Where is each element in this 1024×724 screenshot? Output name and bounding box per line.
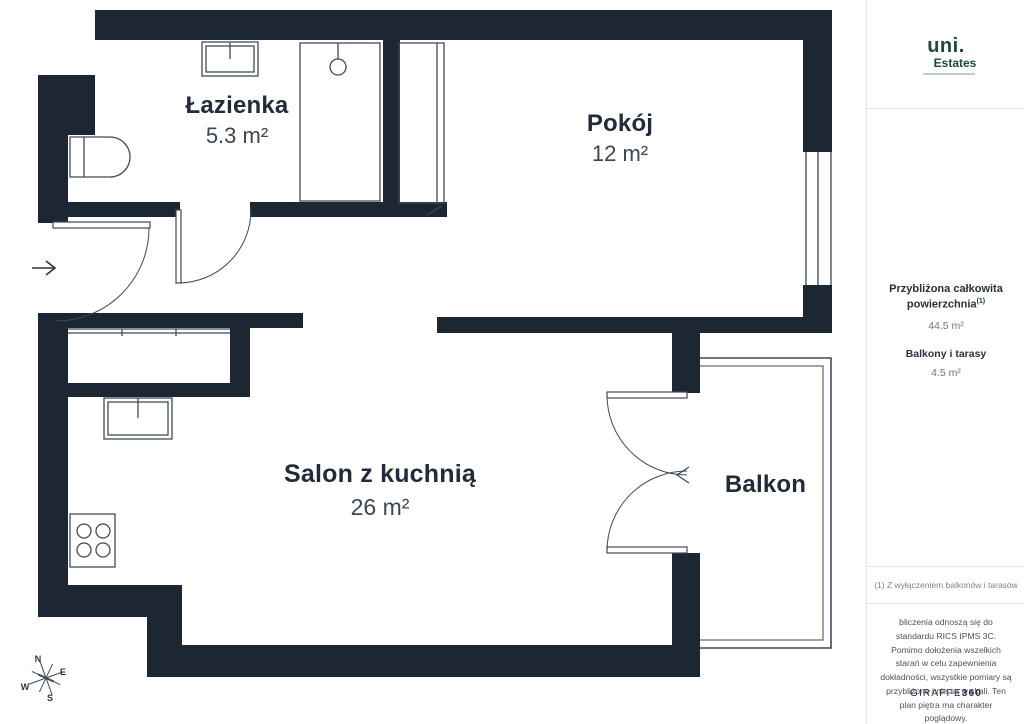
wall-room-divider [437,317,832,333]
toilet [70,137,130,177]
wall-salon-right-upper [672,317,700,393]
info-sidebar: uni. Estates Przybliżona całkowita powie… [866,0,1024,724]
fixtures [68,42,831,648]
footnote-block: (1) Z wyłączeniem balkonów i tarasów [867,566,1024,604]
bathroom-door [176,210,251,283]
balcony-doors [607,392,689,553]
balcony-area-label: Balkony i tarasy [867,348,1024,360]
floorplan-page: N E W S Łazienka 5.3 m² Pokój 12 m² Salo… [0,0,1024,724]
bathroom-sink [202,42,258,76]
wall-pokoj-right-lower [803,285,832,333]
brand-logo-sub: Estates [885,57,1024,70]
balcony-area-value: 4.5 m² [867,367,1024,379]
footnote-text: (1) Z wyłączeniem balkonów i tarasów [874,580,1018,590]
wall-top [95,10,832,40]
wall-niche-bottom [38,383,250,397]
total-area-value: 44.5 m² [867,320,1024,332]
logo-block: uni. Estates [867,0,1024,108]
giraffe360-suffix: 360 [962,688,982,699]
disclaimer-block: bliczenia odnoszą się do standardu RICS … [867,602,1024,724]
divider [867,108,1024,109]
balcony-outline [700,358,831,648]
area-summary: Przybliżona całkowita powierzchnia(1) 44… [867,282,1024,379]
logo-tagline [923,73,975,75]
entrance-arrow-icon [32,261,55,275]
wall-bottom-right [147,645,700,677]
wall-bath-bottom-left [38,202,180,217]
compass-e-label: E [60,667,66,677]
giraffe360-logo: GIRAFFE360 [867,688,1024,699]
wall-bottom-left [38,585,182,617]
doors [32,206,689,553]
total-area-label-text: Przybliżona całkowita powierzchnia [889,283,1003,311]
floorplan-drawing: N E W S [0,0,866,724]
kitchen-sink [104,398,172,439]
compass-s-label: S [47,693,53,703]
floorplan: N E W S Łazienka 5.3 m² Pokój 12 m² Salo… [0,0,866,724]
wall-left-lower [38,318,68,617]
wall-bath-right [383,40,400,217]
compass-icon: N E W S [21,654,69,703]
stove [70,514,115,567]
wall-hall-bottom [38,313,303,328]
compass-n-label: N [35,654,42,664]
disclaimer-text: bliczenia odnoszą się do standardu RICS … [867,602,1024,724]
wall-topleft-block [38,75,95,135]
shower [300,43,380,201]
brand-logo: uni. [867,36,1024,56]
giraffe360-name: GIRAFFE [910,688,962,699]
compass-w-label: W [21,682,30,692]
wall-pokoj-right-upper [803,10,832,152]
entrance-door [53,222,150,321]
window-pokoj [806,152,831,285]
wardrobe [68,329,230,336]
closet [399,43,444,203]
total-area-label: Przybliżona całkowita powierzchnia(1) [867,282,1024,313]
walls [38,10,832,677]
wall-bath-bottom-right [250,202,447,217]
total-area-footnote-ref: (1) [977,298,986,305]
